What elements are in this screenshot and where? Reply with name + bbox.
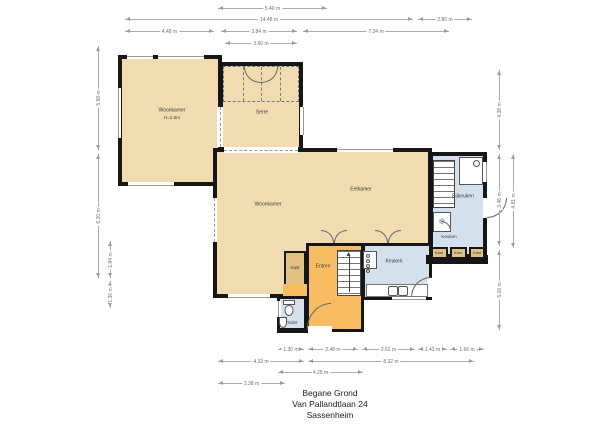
sink-basin-icon: [388, 286, 398, 296]
dimension-label: 4.81 m: [511, 191, 517, 210]
title-floor: Begane Grond: [230, 388, 430, 399]
dimension-label: 1.66 m: [457, 347, 476, 353]
window-glass-line: [127, 56, 153, 57]
dimension-line: 4.32 m: [218, 361, 304, 362]
title-address: Van Pallandtlaan 24: [230, 399, 430, 410]
room-label-entree: Entree: [316, 265, 331, 270]
dimension-label: 7.34 m: [366, 29, 385, 35]
dimension-line: 3.84 m: [221, 31, 297, 32]
dimension-label: 5.40 m: [263, 6, 282, 12]
shower-icon: [459, 157, 483, 185]
stairs-direction-line: [349, 254, 350, 292]
dimension-label: 4.25 m: [311, 370, 330, 376]
window: [211, 198, 217, 242]
dimension-label: 3.46 m: [497, 190, 503, 209]
dimension-label: 1.36 m: [108, 285, 114, 304]
dimension-line: 14.48 m: [125, 19, 413, 20]
window-glass-line: [392, 299, 426, 300]
window-glass-line: [224, 150, 298, 151]
stairs-arrow-icon: [347, 252, 351, 256]
room-label-serre: Serre: [256, 111, 268, 116]
dimension-line: 2.80 m: [418, 19, 472, 20]
dimension-line: 5.40 m: [218, 8, 327, 9]
room-woonkamer-links: [118, 55, 222, 186]
dimension-line: 5.98 m: [98, 46, 99, 150]
window: [228, 294, 270, 300]
window: [158, 53, 204, 59]
window: [128, 182, 174, 188]
dimension-line: 1.43 m: [418, 349, 447, 350]
dimension-line: 1.36 m: [110, 281, 111, 308]
room-label-woonkamer: Woonkamer: [255, 203, 282, 208]
window-glass-line: [228, 297, 270, 298]
dimension-label: 8.32 m: [381, 359, 400, 365]
dimension-label: 1.30 m: [281, 347, 300, 353]
window-glass-line: [158, 56, 204, 57]
dimension-label: 1.84 m: [108, 250, 114, 269]
room-label-bijkeuken: Bijkeuken: [452, 195, 474, 200]
room-label-keuken-hoek: Keuken: [441, 235, 456, 240]
room-label-toilet: Toilet: [287, 321, 298, 326]
dimension-line: 1.30 m: [278, 349, 304, 350]
wall-segment: [277, 328, 309, 333]
wardrobe-divider: [243, 67, 244, 101]
dimension-label: 2.62 m: [379, 347, 398, 353]
room-label-kast-2: Kast: [454, 251, 462, 255]
title-block: Begane Grond Van Pallandtlaan 24 Sassenh…: [230, 388, 430, 421]
stairs-icon: [337, 250, 361, 296]
dimension-line: 4.48 m: [125, 31, 214, 32]
window: [300, 107, 306, 135]
window-glass-line: [278, 301, 279, 317]
dimension-label: 1.43 m: [423, 347, 442, 353]
dimension-label: 5.08 m: [497, 280, 503, 299]
stove-burner-icon: [366, 254, 370, 258]
dimension-line: 7.34 m: [303, 31, 449, 32]
dimension-label: 14.48 m: [258, 17, 280, 23]
title-city: Sassenheim: [230, 410, 430, 421]
toilet-icon: [283, 300, 295, 317]
room-label-kast-3: Kast: [473, 251, 481, 255]
window: [224, 147, 298, 153]
window: [483, 162, 489, 182]
window-glass-line: [220, 107, 221, 147]
dimension-line: 4.25 m: [278, 372, 363, 373]
dimension-line: 3.46 m: [499, 154, 500, 246]
dimension-line: 2.48 m: [308, 349, 358, 350]
floorplan-canvas: ❄WoonkamerH=2.8mSerreWoonkamerEetkamerBi…: [0, 0, 600, 424]
dimension-label: 2.80 m: [435, 17, 454, 23]
dimension-line: 8.32 m: [308, 361, 474, 362]
window-glass-line: [303, 107, 304, 135]
dimension-line: 1.84 m: [110, 241, 111, 278]
stove-burner-icon: [366, 264, 370, 268]
stairs-icon: [433, 160, 455, 208]
dimension-label: 5.98 m: [96, 88, 102, 107]
room-label-kast-1: Kast: [435, 251, 443, 255]
toilet-bowl-icon: [285, 305, 294, 316]
window: [337, 146, 393, 152]
room-label-woonkamer-links-height: H=2.8m: [164, 116, 180, 121]
window: [127, 53, 153, 59]
dimension-line: 6.20 m: [98, 154, 99, 278]
sink-icon: [388, 285, 408, 296]
stove-icon: [363, 251, 377, 269]
window-glass-line: [118, 88, 119, 138]
window-glass-line: [214, 198, 215, 242]
sink-basin-icon: [398, 286, 408, 296]
window: [275, 301, 281, 317]
dimension-label: 4.48 m: [160, 29, 179, 35]
dimension-label: 2.48 m: [323, 347, 342, 353]
wardrobe-divider: [280, 67, 281, 101]
stove-burner-icon: [366, 259, 370, 263]
window-glass-line: [486, 162, 487, 182]
dimension-line: 3.60 m: [225, 43, 297, 44]
window-glass-line: [337, 149, 393, 150]
window: [115, 88, 121, 138]
dimension-label: 3.60 m: [251, 41, 270, 47]
dimension-line: 4.38 m: [499, 70, 500, 150]
room-label-eetkamer: Eetkamer: [350, 188, 371, 193]
window-glass-line: [128, 185, 174, 186]
room-label-keuken: Keuken: [386, 260, 403, 265]
shower-drain-icon: [473, 160, 480, 167]
dimension-line: 4.81 m: [513, 154, 514, 248]
dimension-line: 1.66 m: [450, 349, 484, 350]
dimension-label: 4.32 m: [251, 359, 270, 365]
room-label-woonkamer-links: Woonkamer: [159, 109, 186, 114]
dimension-label: 6.20 m: [96, 206, 102, 225]
dimension-line: 5.08 m: [499, 250, 500, 330]
room-label-kast-hal: Kast: [290, 266, 299, 271]
dimension-line: 2.62 m: [362, 349, 415, 350]
dimension-label: 3.38 m: [242, 381, 261, 387]
window: [217, 107, 223, 147]
dimension-label: 3.84 m: [249, 29, 268, 35]
dimension-line: 3.38 m: [218, 383, 285, 384]
dimension-label: 4.38 m: [497, 100, 503, 119]
stove-burner-icon: [366, 269, 370, 273]
